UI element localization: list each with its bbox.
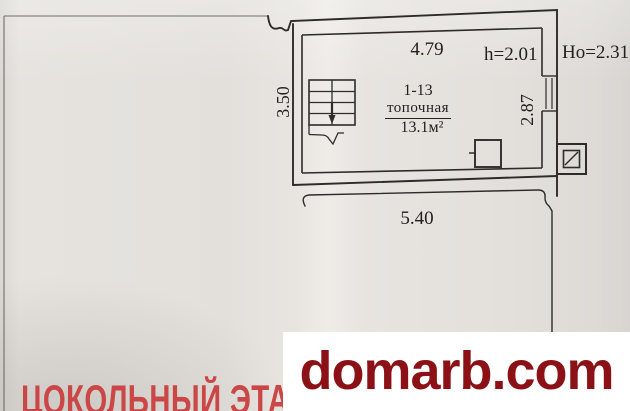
dim-bottom-label: 5.40 (393, 209, 441, 228)
room-number: 1-13 (392, 83, 444, 99)
floor-label: ЦОКОЛЬНЫЙ ЭТАЖ (21, 379, 316, 411)
ceiling-height-label: h=2.01 (484, 45, 537, 64)
room-area: 13.1м² (392, 120, 452, 136)
stairs-symbol (309, 80, 355, 144)
dim-top-label: 4.79 (403, 40, 451, 59)
boiler-symbol (469, 140, 501, 167)
page-border (4, 16, 268, 411)
room-name: топочная (377, 100, 459, 116)
watermark-text: domarb.com (299, 344, 613, 400)
scanned-floorplan-page: 4.79 h=2.01 Ho=2.31 3.50 2.87 5.40 1-13 … (0, 0, 630, 411)
watermark-box: domarb.com (283, 332, 630, 411)
dim-left-label: 3.50 (265, 80, 301, 124)
outer-height-label: Ho=2.31 (562, 43, 629, 62)
flue-symbol (557, 144, 586, 174)
dim-right-label: 2.87 (509, 88, 545, 132)
